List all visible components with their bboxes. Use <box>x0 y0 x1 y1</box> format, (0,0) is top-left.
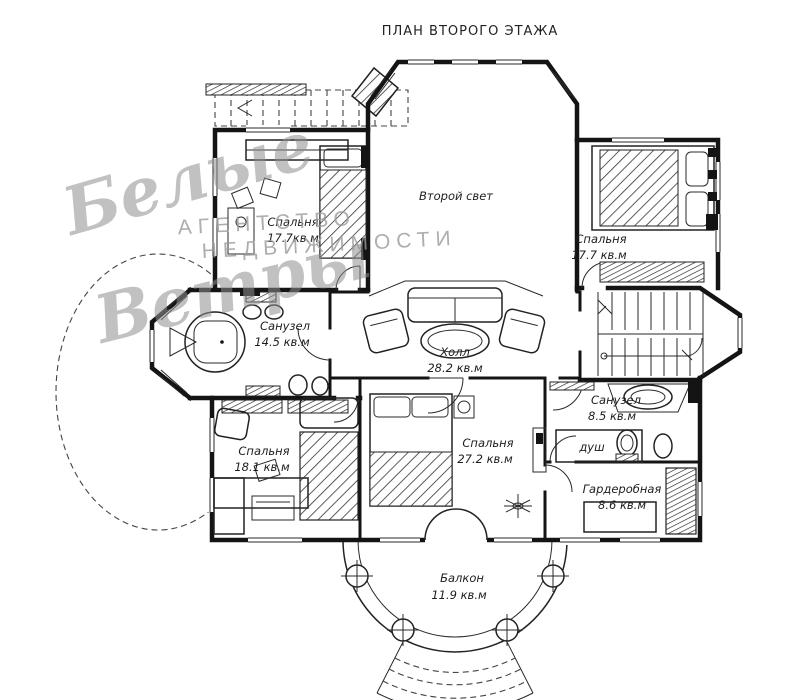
floor-plan-drawing: Спальня 17.7кв.м Второй свет Спальня 17.… <box>0 0 808 700</box>
balcony-structure <box>341 540 569 700</box>
label-bedroom-bl-area: 18.1 кв.м <box>234 460 290 474</box>
label-bedroom-bl-name: Спальня <box>238 444 289 458</box>
label-bedroom-tr-area: 17.7 кв.м <box>571 248 627 262</box>
label-bedroom-tr-name: Спальня <box>575 232 626 246</box>
balcony-fan-stairs <box>377 640 533 700</box>
label-wardrobe-name: Гардеробная <box>583 482 662 496</box>
label-bedroom-bc-area: 27.2 кв.м <box>457 452 513 466</box>
label-bath-right-area: 8.5 кв.м <box>588 409 636 423</box>
label-bath-left-name: Санузел <box>260 319 311 333</box>
label-shower: душ <box>578 440 605 454</box>
label-hall-name: Холл <box>439 345 470 359</box>
label-bath-left-area: 14.5 кв.м <box>254 335 310 349</box>
label-bath-right-name: Санузел <box>591 393 642 407</box>
label-balcony-area: 11.9 кв.м <box>431 588 487 602</box>
label-bedroom-bc-name: Спальня <box>462 436 513 450</box>
floor-plan-page: ПЛАН ВТОРОГО ЭТАЖА <box>0 0 808 700</box>
label-wardrobe-area: 8.6 кв.м <box>598 498 646 512</box>
label-hall-area: 28.2 кв.м <box>427 361 483 375</box>
label-balcony-name: Балкон <box>440 571 484 585</box>
stair-edge-hatch <box>206 84 306 95</box>
label-second-light: Второй свет <box>419 189 493 203</box>
